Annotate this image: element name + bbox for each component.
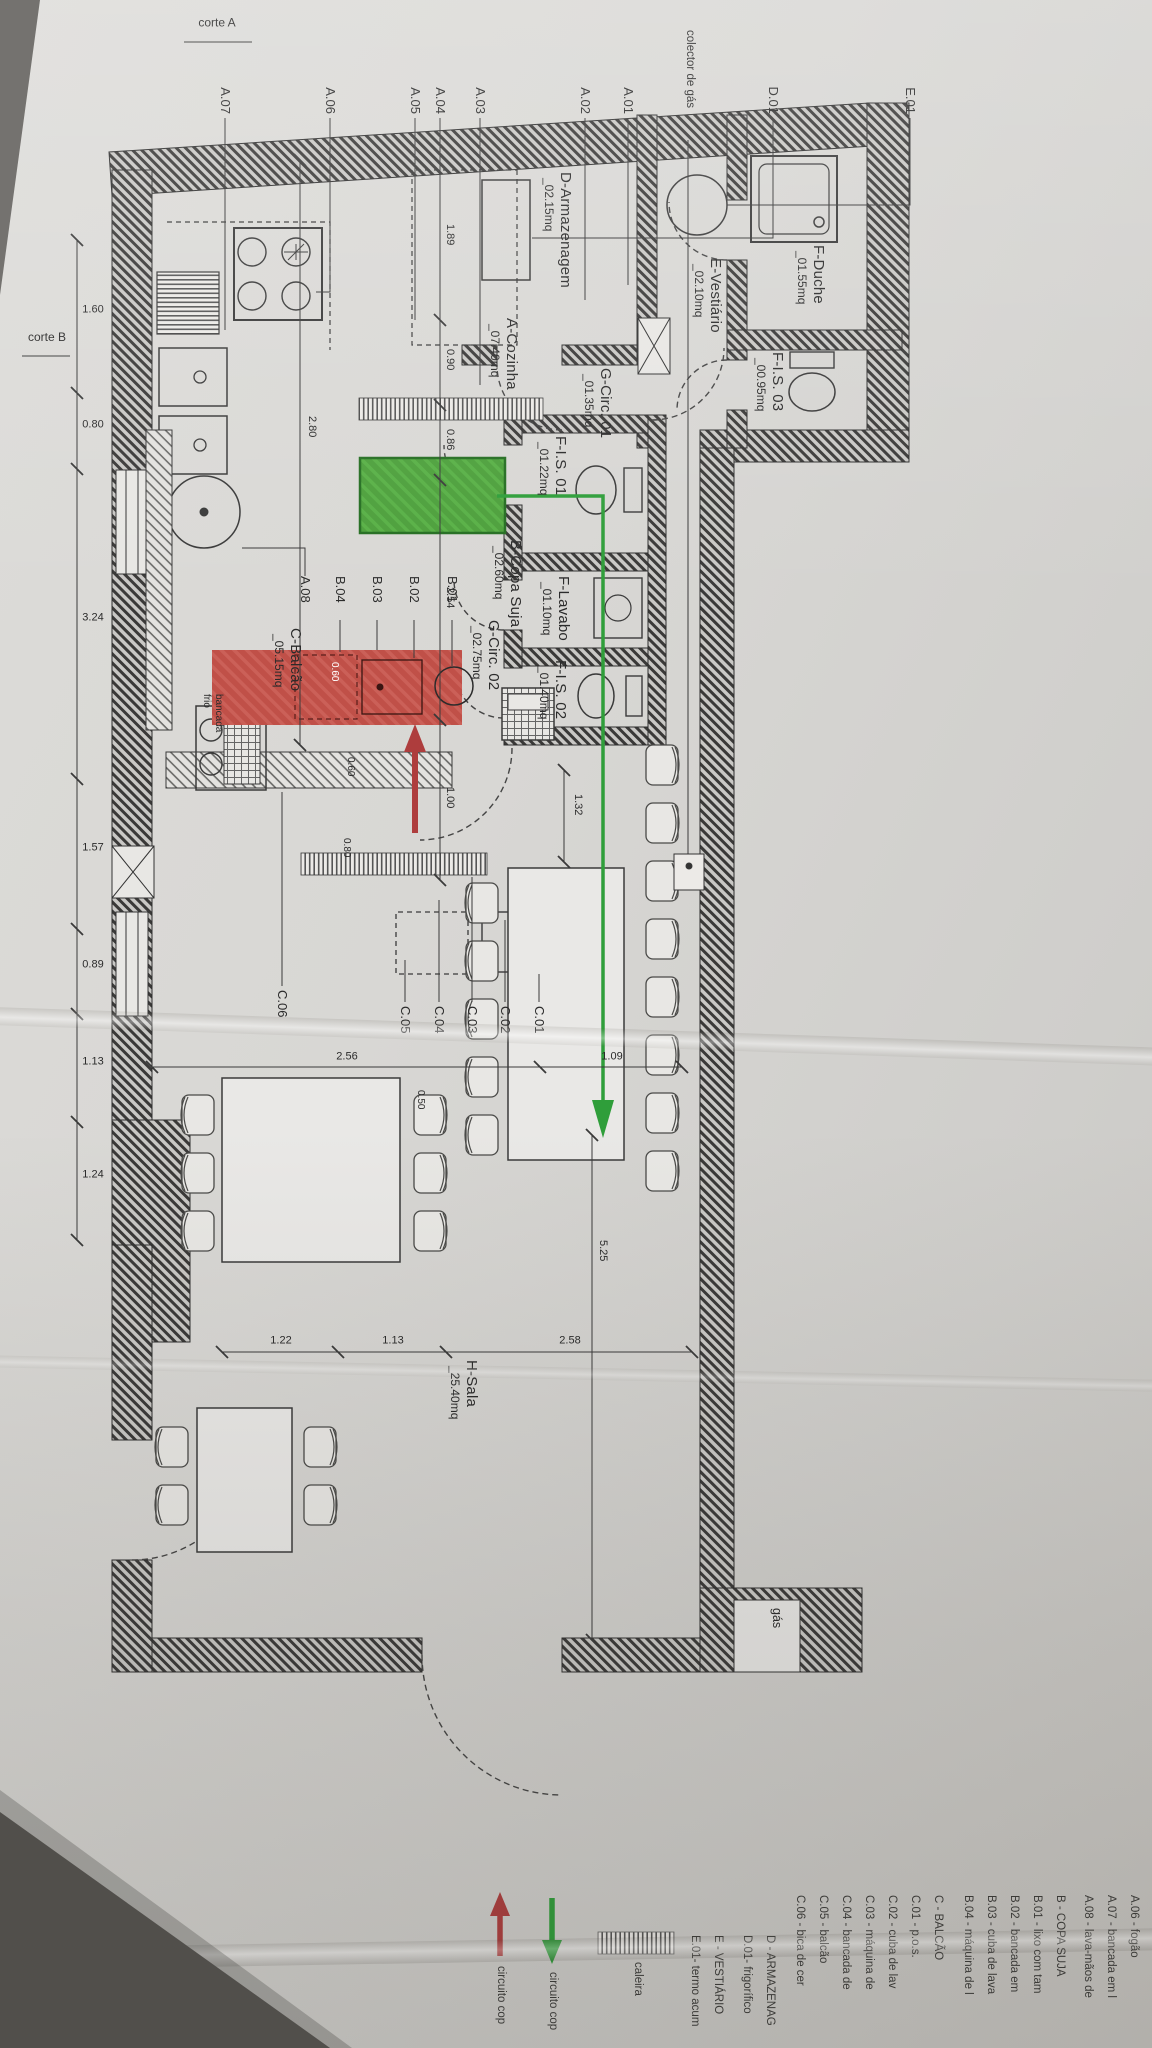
floorplan-canvas: F-Duche_01.55mq F-I.S. 03_00.95mq E-Vest…	[0, 0, 1152, 2048]
legend-symbols	[0, 0, 1152, 2048]
floorplan-photo: F-Duche_01.55mq F-I.S. 03_00.95mq E-Vest…	[0, 0, 1152, 2048]
legend-green-arrow-icon	[542, 1898, 562, 1964]
legend-circuito-red-label: circuito cop	[495, 1966, 507, 2024]
legend-caleira-label: caleira	[632, 1962, 644, 1996]
legend-caleira-swatch	[598, 1932, 674, 1954]
legend-red-arrow-icon	[490, 1892, 510, 1956]
legend-circuito-green-label: circuito cop	[547, 1972, 559, 2030]
